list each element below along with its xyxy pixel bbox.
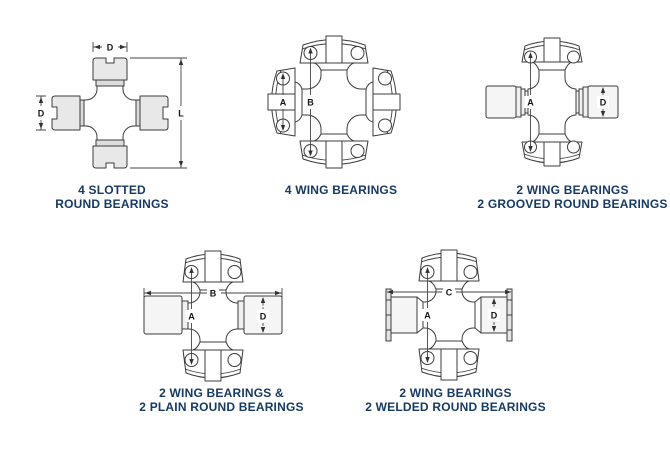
caption-line: 2 WELDED ROUND BEARINGS [358,400,553,414]
groove-ring [583,87,588,117]
bearing-taper [475,297,481,333]
wing-cap-block-top [441,250,457,281]
wing-welded-joint-drawing: C A D [386,250,512,380]
figure-4-wing-bearings: A B [248,25,442,179]
bolt-hole [464,266,477,279]
dimension-label-b: B [210,289,217,299]
bolt-hole [464,352,477,365]
dimension-label-b: B [307,98,314,108]
bearing-neck [366,82,373,122]
caption-2-wing-2-grooved: 2 WING BEARINGS 2 GROOVED ROUND BEARINGS [475,183,670,211]
dimension-label-a: A [424,311,431,321]
dimension-c: C [387,286,511,298]
caption-line: 4 WING BEARINGS [244,183,438,197]
dimension-label-c: C [446,288,453,298]
groove-ring [521,89,525,115]
bolt-hole [379,72,392,85]
wing-cap-block-right [373,94,400,110]
bearing-band [96,80,124,86]
wing-cap-block-bottom [326,141,342,168]
figure-2-wing-2-welded-round-bearings: C A D [363,242,568,387]
bolt-hole [568,141,580,153]
caption-line: ROUND BEARINGS [22,197,202,211]
figure-2-wing-2-plain-round-bearings: B A D [130,242,335,387]
bearing-step [238,301,244,329]
figure-2-wing-2-grooved-round-bearings: A D [480,30,670,180]
wing-cap-block-top [326,36,342,63]
dimension-b: B [305,48,317,157]
bearing-band [80,100,84,126]
bolt-hole [228,354,241,367]
bearing-neck [429,341,469,349]
dimension-label-d-top: D [107,43,114,53]
dimension-label-d: D [260,312,267,322]
caption-2-wing-2-plain: 2 WING BEARINGS & 2 PLAIN ROUND BEARINGS [124,386,319,414]
caption-line: 2 WING BEARINGS [358,386,553,400]
plain-round-bearing-left [144,296,182,334]
caption-line: 2 GROOVED ROUND BEARINGS [475,197,670,211]
bearing-neck [295,82,302,122]
slotted-round-joint-drawing: D D L [35,41,187,168]
wing-cap-block-bottom [205,350,221,381]
four-wing-joint-drawing: A B [268,36,400,168]
bolt-hole [351,47,364,60]
bearing-neck [314,134,354,141]
bolt-hole [568,51,580,63]
slotted-round-bearing-top [93,58,127,80]
caption-line: 2 WING BEARINGS & [124,386,319,400]
figure-4-slotted-round-bearings: D D L [22,40,202,180]
wing-grooved-joint-drawing: A D [486,38,618,166]
caption-2-wing-2-welded: 2 WING BEARINGS 2 WELDED ROUND BEARINGS [358,386,553,414]
bearing-neck [532,134,572,142]
bearing-band [96,140,124,146]
groove-ring [579,89,583,115]
slotted-round-bearing-right [140,96,168,130]
caption-4-wing-bearings: 4 WING BEARINGS [244,183,438,197]
dimension-diameter-left: D [35,96,47,130]
caption-line: 2 PLAIN ROUND BEARINGS [124,400,319,414]
dimension-label-a: A [280,98,287,108]
wing-cap-block-bottom [441,349,457,380]
wing-plain-joint-drawing: B A D [144,251,282,381]
dimension-label-a: A [188,312,195,322]
dimension-label-d: D [491,311,498,321]
slotted-round-bearing-left [52,96,80,130]
cross-body [84,86,136,140]
bearing-neck [532,62,572,70]
wing-cap-block-top [544,38,560,62]
dimension-label-d: D [600,98,607,108]
welded-round-bearing-left [391,297,417,333]
slotted-round-bearing-bottom [93,146,127,168]
wing-cap-block-bottom [544,142,560,166]
bolt-hole [351,145,364,158]
dimension-label-a: A [527,98,534,108]
bolt-hole [228,266,241,279]
bearing-types-diagram-sheet: D D L 4 SLOTTED ROUND BEARINGS [0,0,670,450]
dimension-label-d-left: D [38,109,45,119]
bearing-neck [314,63,354,70]
caption-4-slotted-round-bearings: 4 SLOTTED ROUND BEARINGS [22,183,202,211]
wing-cap-block-top [205,251,221,282]
dimension-a: A [525,52,537,152]
grooved-round-bearing-left [486,86,516,118]
groove-ring [516,87,521,117]
caption-line: 2 WING BEARINGS [475,183,670,197]
bolt-hole [379,119,392,132]
dimension-diameter-top: D [93,41,127,53]
dimension-label-length: L [178,109,184,119]
bearing-band [136,100,140,126]
caption-line: 4 SLOTTED [22,183,202,197]
bearing-neck [193,342,233,350]
